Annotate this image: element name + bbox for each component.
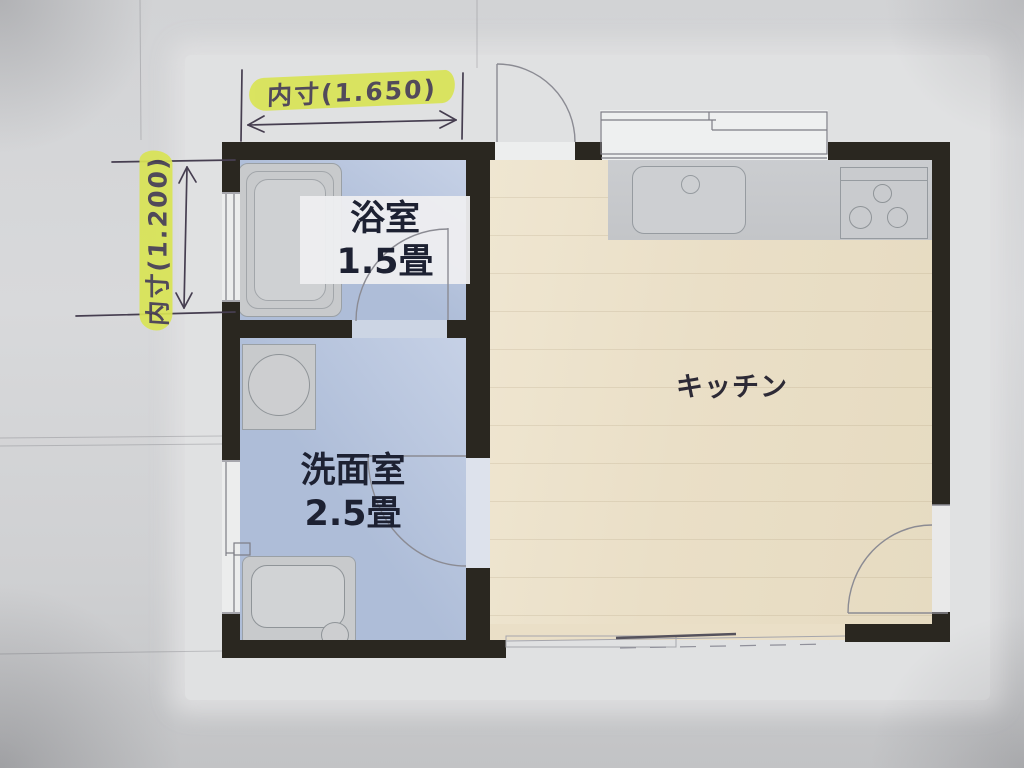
- bathroom-size: 1.5畳: [296, 241, 474, 284]
- left-dimension-text: 内寸(1.200): [138, 154, 174, 326]
- kitchen-label: キッチン: [652, 372, 812, 405]
- wall-segment-bath-wash-divider-left: [222, 320, 352, 338]
- washroom-kitchen-doorway: [466, 458, 490, 568]
- kitchen-faucet-icon: [681, 175, 700, 194]
- top-dimension-annotation: 内寸(1.650): [248, 70, 455, 112]
- wall-segment-washroom-bottom: [222, 640, 506, 658]
- stove-burner-icon: [873, 184, 892, 203]
- kitchen-sink-icon: [632, 166, 746, 234]
- washroom-label: 洗面室 2.5畳: [268, 450, 438, 535]
- left-dimension-annotation: 内寸(1.200): [140, 151, 173, 331]
- photo-of-floor-plan: 浴室 1.5畳 洗面室 2.5畳 キッチン 内寸(1.650) 内寸(1.200…: [0, 0, 1024, 768]
- washroom-name: 洗面室: [268, 450, 438, 493]
- wall-segment-top-mid: [575, 142, 602, 160]
- wall-segment-kitchen-bottom: [845, 624, 950, 642]
- kitchen-right-door-opening: [932, 505, 950, 612]
- washroom-size: 2.5畳: [268, 493, 438, 536]
- wall-segment-kitchen-divider-upper: [466, 142, 490, 458]
- washing-machine-icon: [242, 344, 316, 430]
- vanity-bowl: [251, 565, 345, 628]
- washroom-sliding-door-plate: [222, 460, 240, 614]
- stove-burner-icon: [849, 206, 872, 229]
- wall-segment-top-left: [222, 142, 495, 160]
- bathroom-label: 浴室 1.5畳: [296, 198, 474, 283]
- kitchen-floor-open-edge: [490, 624, 845, 640]
- stove-edge: [841, 180, 927, 181]
- wall-segment-left-c: [222, 614, 240, 658]
- stove-burner-icon: [887, 207, 908, 228]
- kitchen-counter: [608, 158, 932, 240]
- stove-icon: [840, 167, 928, 239]
- washing-machine-drum: [248, 354, 310, 416]
- wall-segment-kitchen-divider-lower: [466, 568, 490, 658]
- bathroom-door-threshold: [352, 320, 447, 338]
- kitchen-window-plate: [600, 110, 828, 160]
- bathroom-window-plate: [222, 192, 240, 302]
- entry-door-opening: [495, 142, 575, 160]
- wall-segment-left-a: [222, 142, 240, 192]
- wall-segment-right-upper: [932, 142, 950, 505]
- bathroom-name: 浴室: [296, 198, 474, 241]
- vanity-sink-icon: [242, 556, 356, 647]
- top-dimension-text: 内寸(1.650): [267, 69, 438, 112]
